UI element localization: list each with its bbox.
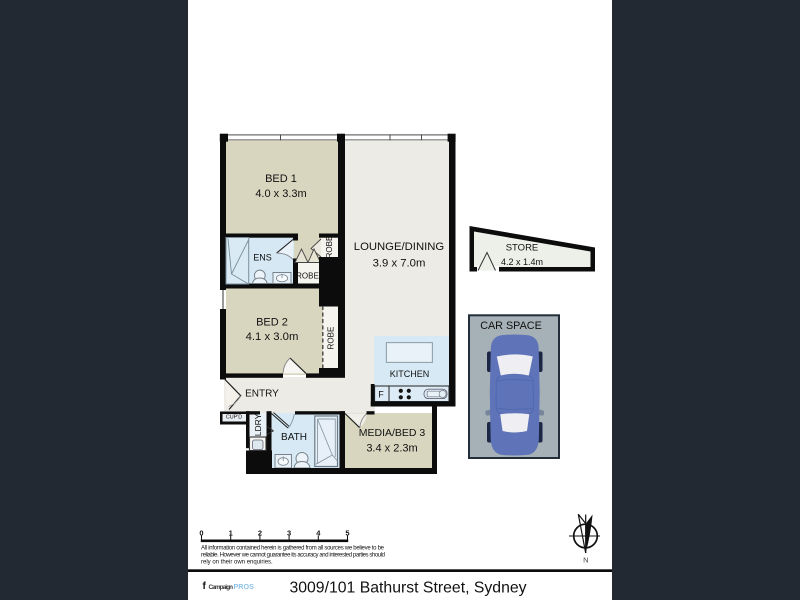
svg-text:ROBE: ROBE [325, 236, 334, 259]
svg-text:reliable. However we cannot gu: reliable. However we cannot guarantee it… [201, 553, 385, 559]
svg-text:CUP'D: CUP'D [226, 415, 242, 421]
svg-text:LOUNGE/DINING: LOUNGE/DINING [354, 241, 444, 253]
svg-text:Campaign: Campaign [209, 584, 234, 591]
svg-text:BATH: BATH [281, 432, 307, 443]
svg-text:3.9 x 7.0m: 3.9 x 7.0m [373, 258, 426, 270]
svg-text:CAR SPACE: CAR SPACE [480, 320, 542, 332]
svg-text:rely on their own enquiries.: rely on their own enquiries. [201, 560, 273, 566]
svg-text:4.1 x 3.0m: 4.1 x 3.0m [246, 331, 299, 343]
svg-text:N: N [583, 555, 588, 564]
svg-text:STORE: STORE [506, 243, 539, 254]
svg-text:BED 2: BED 2 [256, 317, 288, 329]
svg-text:BED 1: BED 1 [265, 173, 297, 185]
svg-text:F: F [378, 389, 384, 399]
svg-text:PROS: PROS [234, 582, 255, 591]
svg-text:3.4 x 2.3m: 3.4 x 2.3m [366, 443, 417, 455]
svg-text:ROBE: ROBE [326, 327, 335, 350]
svg-text:KITCHEN: KITCHEN [390, 369, 430, 379]
svg-text:4.2 x 1.4m: 4.2 x 1.4m [501, 257, 543, 267]
svg-text:ROBE: ROBE [296, 272, 319, 281]
svg-text:3009/101 Bathurst Street, Sydn: 3009/101 Bathurst Street, Sydney [289, 580, 526, 597]
svg-text:All information contained here: All information contained herein is gath… [201, 546, 385, 552]
svg-text:ENS: ENS [253, 253, 272, 263]
svg-text:4.0 x 3.3m: 4.0 x 3.3m [255, 188, 306, 200]
svg-text:MEDIA/BED 3: MEDIA/BED 3 [359, 427, 426, 439]
svg-text:LDRY: LDRY [253, 413, 263, 436]
svg-text:ENTRY: ENTRY [245, 389, 279, 400]
